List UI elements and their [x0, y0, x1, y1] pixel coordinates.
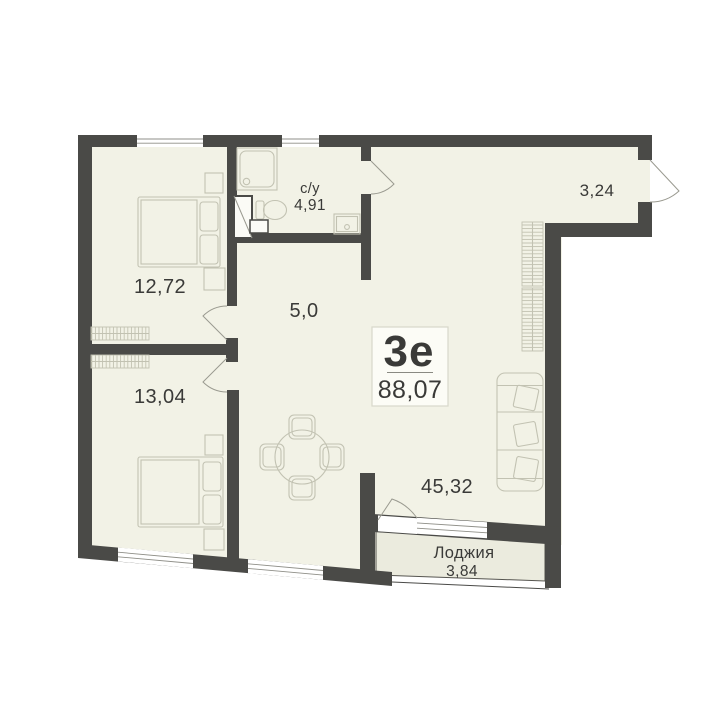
wardrobe-bedroom2 — [91, 355, 149, 368]
hallway-area-label: 5,0 — [289, 300, 318, 322]
wall-entry-right-upper — [638, 135, 652, 160]
wall-entry-bottom — [545, 223, 652, 237]
wall-left — [78, 135, 92, 550]
loggia-name-label: Лоджия — [434, 544, 495, 562]
living-area-label: 45,32 — [421, 476, 473, 498]
unit-total-area-label: 88,07 — [378, 376, 443, 404]
floorplan-canvas: 12,72 13,04 5,0 с/у 4,91 3,24 45,32 Лодж… — [0, 0, 726, 726]
wall-pier — [360, 473, 375, 582]
bathroom-area-label: 4,91 — [294, 197, 326, 214]
wardrobe-bedroom1 — [91, 327, 149, 340]
bedroom1-area-label: 12,72 — [134, 276, 186, 298]
balcony-door-opening — [378, 516, 417, 535]
bathroom-name-label: с/у — [300, 181, 320, 197]
window-bedroom1-top — [137, 135, 203, 147]
loggia-area-label: 3,84 — [446, 563, 478, 580]
duct-box — [250, 220, 268, 233]
floorplan-page: 12,72 13,04 5,0 с/у 4,91 3,24 45,32 Лодж… — [0, 0, 726, 726]
wall-junction-block — [226, 338, 238, 362]
wall-bedroom2-right — [227, 390, 239, 562]
wall-bedrooms-divider — [92, 344, 227, 355]
wall-bathroom-right-upper — [361, 147, 371, 161]
entry-door-arc — [650, 160, 679, 202]
bedroom2-area-label: 13,04 — [134, 386, 186, 408]
loggia-outer-edge-line — [371, 581, 549, 589]
unit-label-box: 3е 88,07 — [372, 327, 448, 406]
floor-center-column — [235, 200, 380, 580]
wall-bathroom-right-lower — [361, 194, 371, 280]
window-bathroom-top — [282, 135, 319, 147]
unit-type-label: 3е — [384, 327, 435, 376]
entry-area-label: 3,24 — [580, 181, 615, 200]
